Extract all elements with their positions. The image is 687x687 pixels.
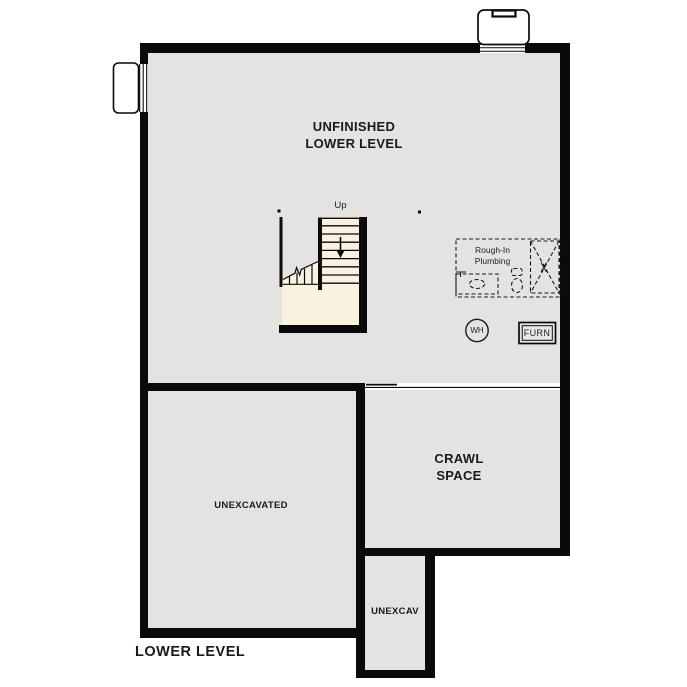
foundation-sill [365,383,560,390]
plan-title: LOWER LEVEL [135,644,335,660]
fireplace-bump-icon [478,10,529,53]
unexcav-strip-label: UNEXCAV [364,606,426,617]
flue-icon [493,11,516,17]
water-heater-label: WH [465,326,489,335]
floorplan-drawing [0,0,687,687]
wall-crawl-bottom [356,548,570,556]
wall-strip-bottom [356,670,435,678]
crawl-space-label: CRAWL SPACE [379,450,539,484]
wall-left [140,43,148,638]
floorplan-page: UNFINISHED LOWER LEVEL Up Rough-In Plumb… [0,0,687,687]
furnace-label: FURN [519,328,555,338]
post-marker-left [278,210,281,213]
wall-strip-right [425,548,435,678]
rough-in-plumbing-label: Rough-In Plumbing [462,245,523,266]
wall-right [560,43,570,556]
wall-mid-horizontal [140,383,365,391]
wall-unexcavated-bottom [140,628,365,638]
main-room-label: UNFINISHED LOWER LEVEL [274,118,434,152]
post-marker-right [418,211,421,214]
bay-window-icon [114,63,149,113]
stair-up-label: Up [318,200,363,211]
unexcavated-label: UNEXCAVATED [171,500,331,511]
